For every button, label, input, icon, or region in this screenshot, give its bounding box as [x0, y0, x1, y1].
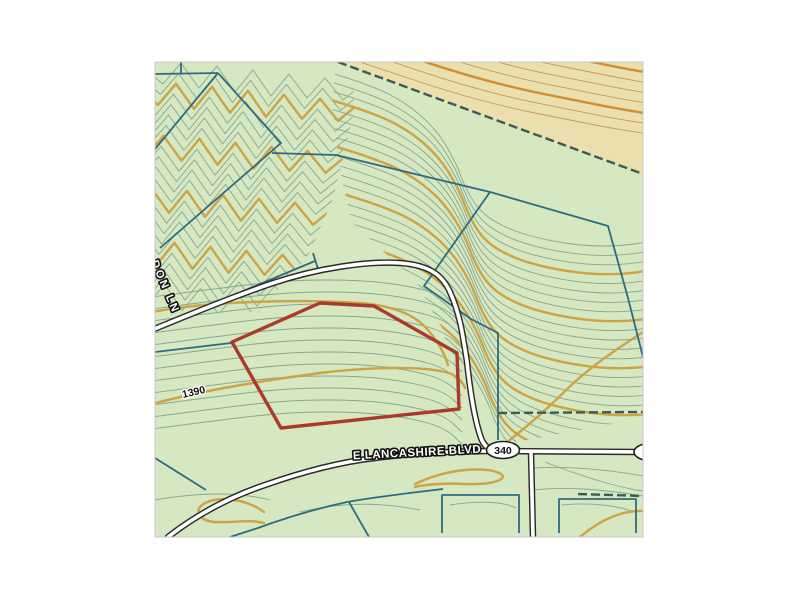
route-shield-text: 340 [494, 445, 512, 457]
route-shield-340: 340 [487, 442, 520, 459]
map-canvas[interactable]: E LANCASHIRE BLVD DON LN 1390 340 [0, 0, 800, 600]
map-frame: E LANCASHIRE BLVD DON LN 1390 340 [0, 0, 800, 600]
route-shield-partial [634, 444, 666, 461]
map-layers: E LANCASHIRE BLVD DON LN 1390 340 [94, 0, 693, 537]
